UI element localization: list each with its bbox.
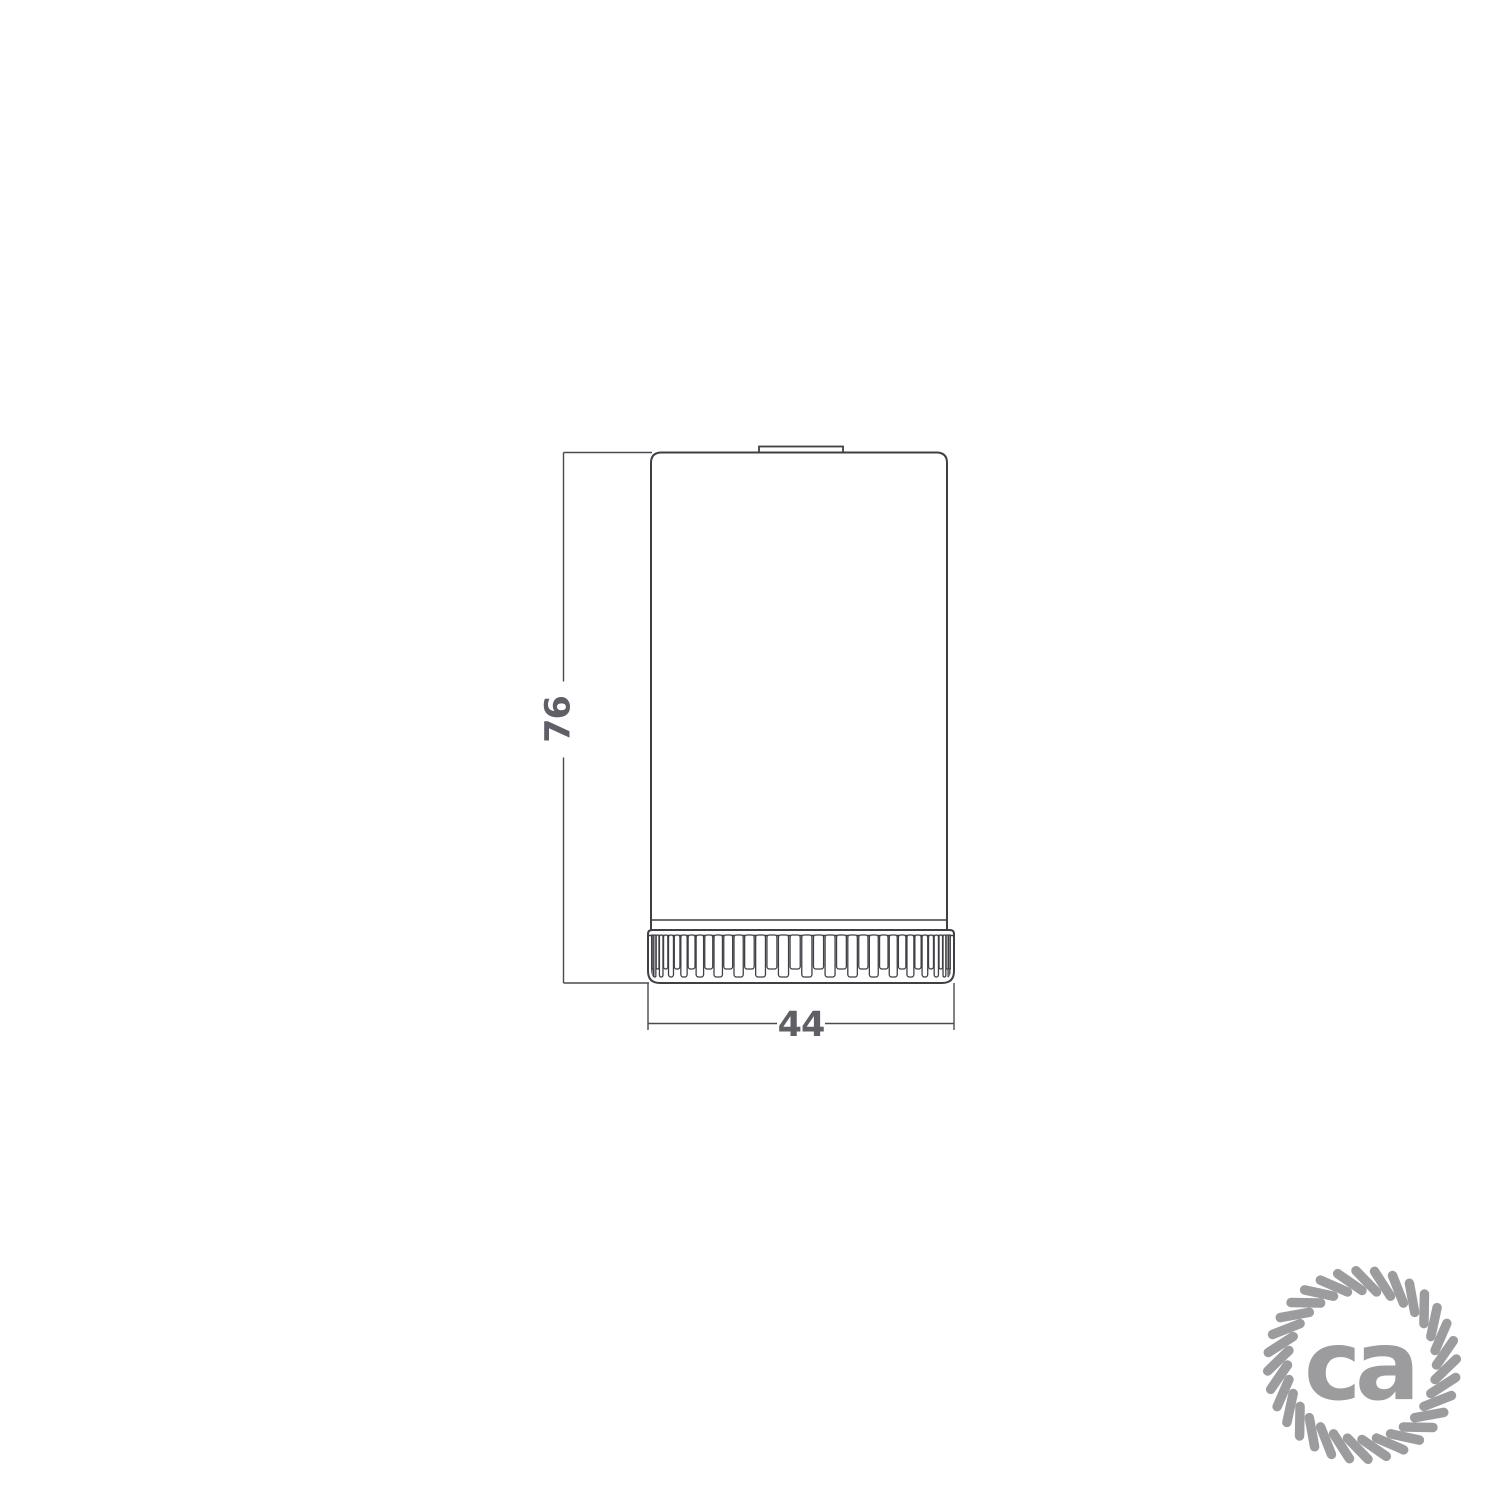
height-dimension: 76: [538, 453, 653, 984]
rope-strand: [1424, 1294, 1425, 1324]
knurl-rib: [929, 935, 934, 969]
knurl-rib: [934, 935, 938, 977]
knurl-rib: [778, 935, 788, 977]
rope-strand: [1305, 1290, 1334, 1296]
knurl-rib: [745, 935, 755, 969]
rope-strand: [1309, 1418, 1314, 1447]
knurled-ring: [648, 930, 954, 983]
rope-strand: [1287, 1394, 1293, 1423]
knurl-rib: [664, 935, 668, 969]
knurl-rib: [898, 935, 905, 969]
knurl-rib: [915, 935, 921, 969]
knurl-rib: [943, 935, 946, 977]
knurl-rib: [669, 935, 674, 977]
logo-text: ca: [1304, 1310, 1414, 1422]
cylinder-outline: [651, 453, 947, 931]
knurl-rib: [790, 935, 800, 969]
lamp-holder-body: [651, 447, 947, 931]
knurl-rib: [939, 935, 943, 969]
rope-strand: [1291, 1303, 1321, 1304]
knurl-rib: [705, 935, 713, 969]
rope-strand: [1300, 1406, 1301, 1436]
knurl-rib: [681, 935, 687, 977]
technical-drawing-canvas: 76 44 ca: [0, 0, 1500, 1500]
brand-logo: ca: [1268, 1271, 1457, 1460]
knurl-rib: [907, 935, 914, 977]
knurl-rib: [714, 935, 722, 977]
knurl-rib: [688, 935, 695, 969]
knurl-rib: [813, 935, 823, 969]
knurl-rib: [880, 935, 888, 969]
width-dimension-label: 44: [778, 1005, 825, 1045]
width-dimension: 44: [648, 983, 954, 1045]
knurl-rib: [889, 935, 897, 977]
knurl-rib: [659, 935, 663, 977]
rope-strand: [1403, 1427, 1433, 1428]
height-dimension-label: 76: [539, 696, 579, 743]
knurl-rib: [724, 935, 733, 969]
knurl-rib: [922, 935, 928, 977]
knurl-rib: [734, 935, 743, 977]
product-dimension-drawing: 76 44 ca: [0, 0, 1500, 1500]
knurl-rib: [859, 935, 868, 969]
rope-strand: [1415, 1412, 1444, 1417]
knurl-rib: [848, 935, 858, 977]
knurl-rib: [949, 935, 951, 969]
knurl-rib: [756, 935, 766, 977]
knurl-rib: [656, 935, 659, 969]
rope-strand: [1431, 1308, 1437, 1337]
knurl-rib: [869, 935, 878, 977]
knurl-rib: [837, 935, 847, 969]
knurl-rib: [802, 935, 812, 977]
rope-strand: [1391, 1434, 1420, 1440]
knurl-rib: [767, 935, 777, 969]
knurl-rib: [825, 935, 835, 977]
knurl-rib: [696, 935, 703, 977]
rope-strand: [1409, 1283, 1414, 1312]
knurl-ribs: [651, 935, 950, 977]
knurl-rib: [674, 935, 680, 969]
